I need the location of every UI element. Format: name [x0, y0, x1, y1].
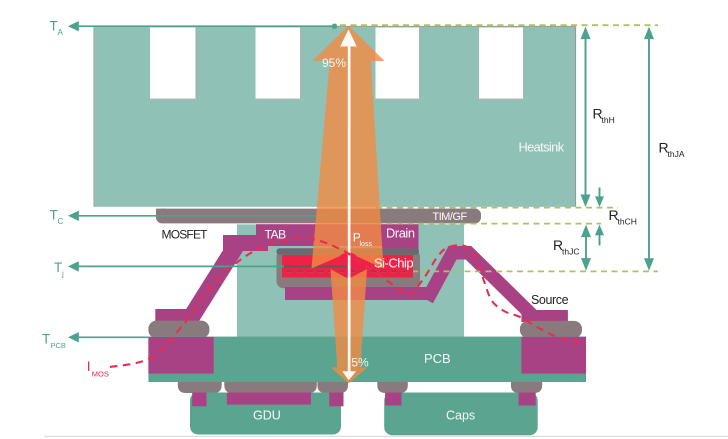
svg-text:Heatsink: Heatsink [519, 140, 565, 155]
svg-text:5%: 5% [351, 356, 369, 370]
svg-text:T: T [42, 332, 50, 347]
svg-text:Drain: Drain [386, 226, 415, 241]
svg-text:j: j [61, 270, 64, 279]
svg-text:thJA: thJA [668, 149, 685, 159]
svg-text:T: T [50, 19, 58, 34]
svg-text:95%: 95% [322, 56, 346, 70]
svg-text:thJC: thJC [562, 247, 579, 257]
svg-text:T: T [54, 260, 62, 275]
svg-text:PCB: PCB [424, 351, 451, 366]
svg-text:Si-Chip: Si-Chip [374, 256, 413, 271]
svg-text:GDU: GDU [253, 409, 281, 423]
svg-text:thCH: thCH [618, 217, 637, 227]
svg-text:T: T [50, 207, 58, 222]
svg-text:Source: Source [531, 293, 569, 307]
svg-text:TIM/GF: TIM/GF [433, 211, 468, 223]
svg-text:A: A [58, 28, 64, 37]
svg-text:I: I [87, 359, 91, 374]
svg-text:thH: thH [602, 115, 615, 125]
svg-text:Caps: Caps [446, 409, 475, 423]
svg-text:C: C [58, 217, 64, 226]
svg-text:PCB: PCB [51, 341, 66, 350]
svg-text:MOS: MOS [92, 369, 109, 378]
svg-text:TAB: TAB [265, 227, 286, 241]
svg-text:MOSFET: MOSFET [162, 227, 209, 241]
svg-text:loss: loss [360, 241, 373, 248]
